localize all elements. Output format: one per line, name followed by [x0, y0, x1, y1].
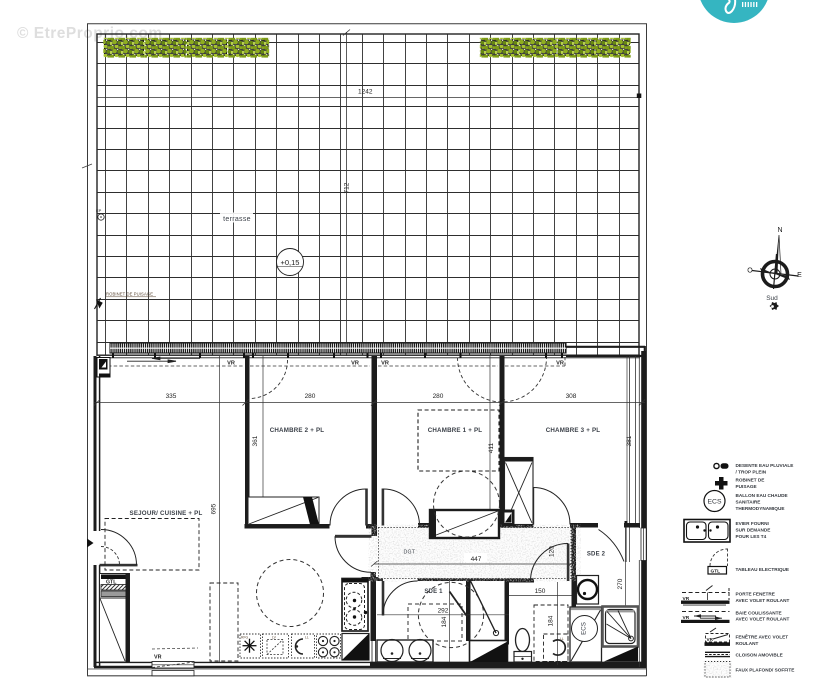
svg-text:ROBINET DE: ROBINET DE: [736, 478, 765, 483]
svg-text:184: 184: [441, 616, 448, 627]
svg-text:DGT: DGT: [404, 550, 416, 556]
svg-text:EVIER FOURNI: EVIER FOURNI: [736, 521, 769, 526]
svg-text:VR: VR: [227, 361, 235, 367]
svg-text:TABLEAU ELECTRIQUE: TABLEAU ELECTRIQUE: [736, 567, 790, 572]
svg-text:280: 280: [433, 393, 444, 400]
svg-text:VR: VR: [707, 637, 714, 642]
svg-text:GTL: GTL: [711, 569, 721, 575]
svg-text:DESENTE EAU PLUVIALE: DESENTE EAU PLUVIALE: [736, 463, 794, 468]
svg-text:411: 411: [488, 442, 495, 453]
svg-text:E: E: [797, 272, 802, 279]
svg-text:LL: LL: [305, 636, 309, 640]
svg-text:EP: EP: [96, 208, 102, 213]
svg-text:AVEC VOLET ROULANT: AVEC VOLET ROULANT: [736, 598, 790, 603]
svg-text:AVEC VOLET ROULANT: AVEC VOLET ROULANT: [736, 617, 790, 622]
svg-text:Sud: Sud: [766, 295, 778, 302]
svg-text:SDE 1: SDE 1: [424, 589, 443, 595]
svg-text:CHAMBRE 1 + PL: CHAMBRE 1 + PL: [428, 427, 483, 434]
svg-text:270: 270: [617, 578, 624, 589]
svg-text:SEJOUR/ CUISINE + PL: SEJOUR/ CUISINE + PL: [130, 510, 203, 517]
svg-text:POUR LES T4: POUR LES T4: [736, 534, 767, 539]
svg-text:SANITAIRE: SANITAIRE: [736, 500, 761, 505]
svg-text:RFG: RFG: [241, 636, 249, 640]
svg-text:SUR DEMANDE: SUR DEMANDE: [736, 528, 771, 533]
svg-text:CHAMBRE 2 + PL: CHAMBRE 2 + PL: [270, 427, 325, 434]
svg-text:LL: LL: [560, 637, 564, 641]
svg-text:695: 695: [211, 503, 218, 514]
svg-text:CHAMBRE 3 + PL: CHAMBRE 3 + PL: [546, 427, 601, 434]
svg-text:VR: VR: [351, 361, 359, 367]
svg-text:FAUX PLAFOND/ SOFFITE: FAUX PLAFOND/ SOFFITE: [736, 668, 795, 673]
svg-text:CLOISON AMOVIBLE: CLOISON AMOVIBLE: [736, 652, 783, 657]
svg-text:ROBINET DE PUISAGE: ROBINET DE PUISAGE: [106, 292, 153, 297]
svg-text:ECS: ECS: [708, 499, 722, 506]
svg-text:/ TROP PLEIN: / TROP PLEIN: [736, 470, 767, 475]
svg-text:150: 150: [535, 588, 546, 595]
svg-text:VR: VR: [381, 361, 389, 367]
svg-text:THERMODYNAMIQUE: THERMODYNAMIQUE: [736, 506, 785, 511]
svg-text:terrasse: terrasse: [223, 216, 251, 223]
svg-text:PORTE FENETRE: PORTE FENETRE: [736, 592, 775, 597]
svg-text:1242: 1242: [358, 89, 373, 96]
svg-text:VR: VR: [154, 655, 162, 661]
svg-text:335: 335: [166, 393, 177, 400]
svg-text:O: O: [747, 268, 753, 275]
svg-text:+0,15: +0,15: [281, 258, 300, 267]
svg-text:447: 447: [471, 556, 482, 563]
svg-text:SDE 2: SDE 2: [587, 552, 606, 558]
svg-text:ROULANT: ROULANT: [736, 641, 759, 646]
svg-text:280: 280: [305, 393, 316, 400]
svg-text:292: 292: [438, 608, 449, 615]
svg-text:PUISAGE: PUISAGE: [736, 484, 757, 489]
svg-text:BAIE COULISSANTE: BAIE COULISSANTE: [736, 610, 782, 615]
svg-text:381: 381: [626, 435, 633, 446]
svg-text:VR: VR: [556, 361, 564, 367]
svg-text:712: 712: [344, 182, 351, 193]
svg-text:FENÊTRE AVEC VOLET: FENÊTRE AVEC VOLET: [736, 633, 789, 640]
svg-text:361: 361: [252, 435, 259, 446]
svg-text:184: 184: [548, 615, 555, 626]
svg-text:BALLON EAU CHAUDE: BALLON EAU CHAUDE: [736, 493, 788, 498]
svg-text:N: N: [777, 227, 782, 234]
svg-text:308: 308: [566, 393, 577, 400]
svg-text:ECS: ECS: [581, 622, 588, 635]
